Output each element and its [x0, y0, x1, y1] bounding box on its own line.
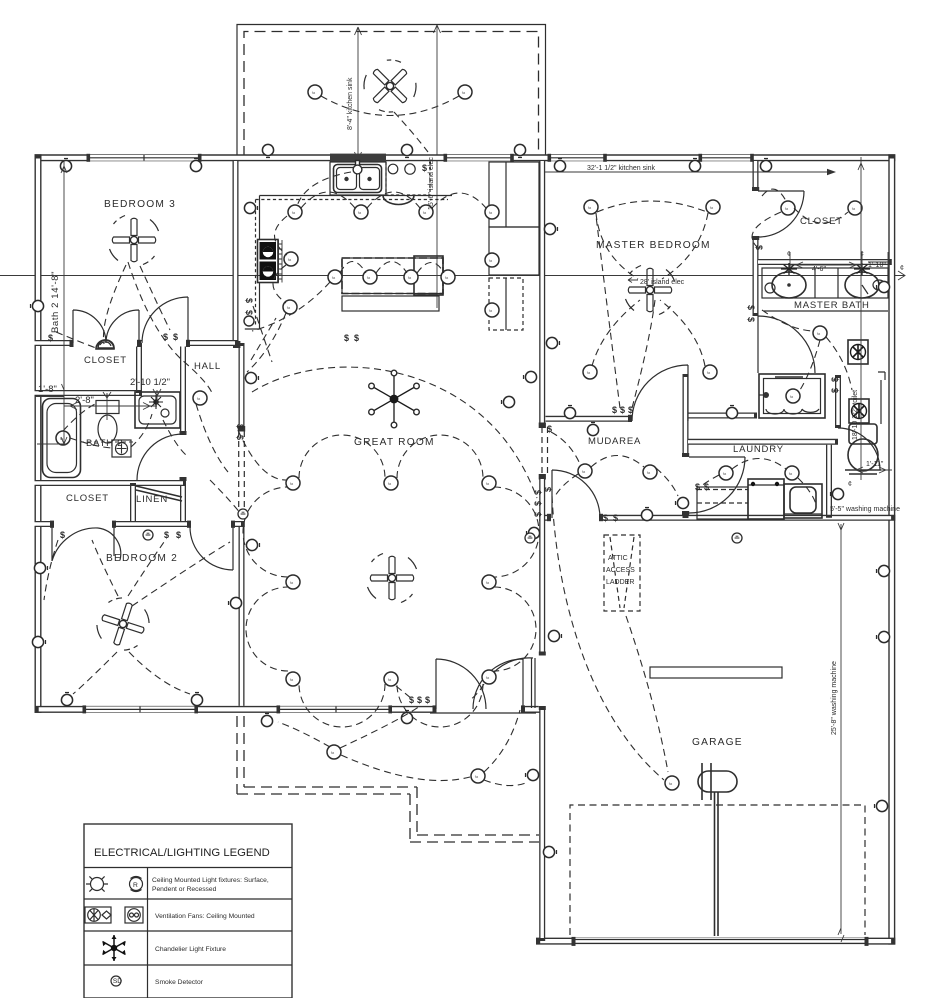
svg-text:$: $	[417, 695, 422, 705]
svg-text:$: $	[354, 333, 359, 343]
svg-text:$: $	[235, 435, 245, 440]
svg-text:1'-8": 1'-8"	[38, 384, 57, 395]
svg-text:$: $	[163, 332, 168, 342]
svg-text:$: $	[603, 513, 608, 523]
svg-text:5'-5" washing machine: 5'-5" washing machine	[830, 506, 900, 513]
svg-text:15'-6" island elec: 15'-6" island elec	[428, 157, 435, 210]
svg-text:Ceiling Mounted Light fixtures: Ceiling Mounted Light fixtures: Surface,	[152, 877, 269, 884]
svg-text:18'-10 1/2" toilet: 18'-10 1/2" toilet	[852, 390, 859, 440]
svg-text:ATTIC: ATTIC	[608, 555, 628, 562]
svg-text:Smoke Detector: Smoke Detector	[155, 979, 204, 986]
svg-text:BATH 2: BATH 2	[86, 438, 123, 449]
svg-text:8'-4" kitchen sink: 8'-4" kitchen sink	[347, 77, 354, 130]
svg-text:$: $	[543, 487, 553, 492]
svg-text:$: $	[613, 513, 618, 523]
svg-text:BEDROOM 2: BEDROOM 2	[106, 553, 178, 564]
svg-text:Bath 2 14'-8": Bath 2 14'-8"	[50, 271, 61, 333]
svg-text:$: $	[704, 482, 709, 492]
svg-text:$: $	[547, 424, 552, 434]
svg-text:$: $	[422, 163, 427, 173]
svg-text:GARAGE: GARAGE	[692, 737, 743, 748]
svg-text:4'-6": 4'-6"	[812, 266, 826, 273]
svg-text:$: $	[344, 333, 349, 343]
svg-text:Ventilation Fans: Ceiling Moun: Ventilation Fans: Ceiling Mounted	[155, 913, 255, 920]
svg-text:Pendent or Recessed: Pendent or Recessed	[152, 886, 217, 893]
svg-text:$: $	[746, 317, 756, 322]
svg-text:$: $	[533, 501, 543, 506]
svg-text:$: $	[620, 405, 625, 415]
svg-text:$: $	[173, 332, 178, 342]
svg-text:$: $	[60, 530, 65, 540]
svg-text:$: $	[48, 333, 53, 343]
svg-text:HALL: HALL	[194, 361, 221, 372]
svg-text:$: $	[830, 388, 840, 393]
svg-text:32'-1 1/2" kitchen sink: 32'-1 1/2" kitchen sink	[587, 165, 656, 172]
svg-text:$: $	[830, 377, 840, 382]
svg-text:CLOSET: CLOSET	[66, 493, 109, 504]
svg-text:CLOSET: CLOSET	[84, 355, 127, 366]
svg-text:Chandelier Light Fixture: Chandelier Light Fixture	[155, 946, 226, 953]
svg-text:$: $	[235, 424, 245, 429]
svg-text:BEDROOM 3: BEDROOM 3	[104, 199, 176, 210]
svg-text:$: $	[425, 695, 430, 705]
svg-text:$: $	[754, 245, 764, 250]
svg-text:1'-11": 1'-11"	[866, 461, 884, 468]
svg-text:R: R	[133, 882, 138, 889]
svg-text:$: $	[612, 405, 617, 415]
svg-text:ACCESS: ACCESS	[606, 567, 635, 574]
svg-text:CLOSET: CLOSET	[800, 216, 843, 227]
svg-text:ELECTRICAL/LIGHTING LEGEND: ELECTRICAL/LIGHTING LEGEND	[94, 847, 270, 859]
svg-text:$: $	[533, 490, 543, 495]
svg-text:$: $	[244, 310, 254, 315]
svg-text:SD: SD	[113, 978, 122, 985]
svg-text:MASTER BATH: MASTER BATH	[794, 300, 870, 311]
svg-text:$: $	[176, 530, 181, 540]
svg-text:¢: ¢	[848, 481, 852, 488]
svg-text:¢: ¢	[787, 251, 791, 258]
svg-text:1'-10": 1'-10"	[868, 262, 886, 269]
svg-text:¢: ¢	[900, 265, 904, 272]
svg-text:$: $	[695, 482, 700, 492]
svg-text:$: $	[164, 530, 169, 540]
svg-text:LADDER: LADDER	[606, 579, 634, 586]
svg-text:25'-8" washing machine: 25'-8" washing machine	[831, 661, 838, 735]
svg-text:$: $	[244, 298, 254, 303]
svg-text:2'-10 1/2": 2'-10 1/2"	[130, 377, 170, 388]
svg-text:LAUNDRY: LAUNDRY	[733, 444, 784, 455]
svg-text:MUDAREA: MUDAREA	[588, 436, 641, 447]
svg-text:LINEN: LINEN	[136, 494, 168, 505]
svg-text:2'-8": 2'-8"	[75, 395, 94, 406]
svg-text:$: $	[533, 512, 543, 517]
svg-text:$: $	[409, 695, 414, 705]
svg-text:$: $	[628, 405, 633, 415]
svg-text:$: $	[746, 305, 756, 310]
